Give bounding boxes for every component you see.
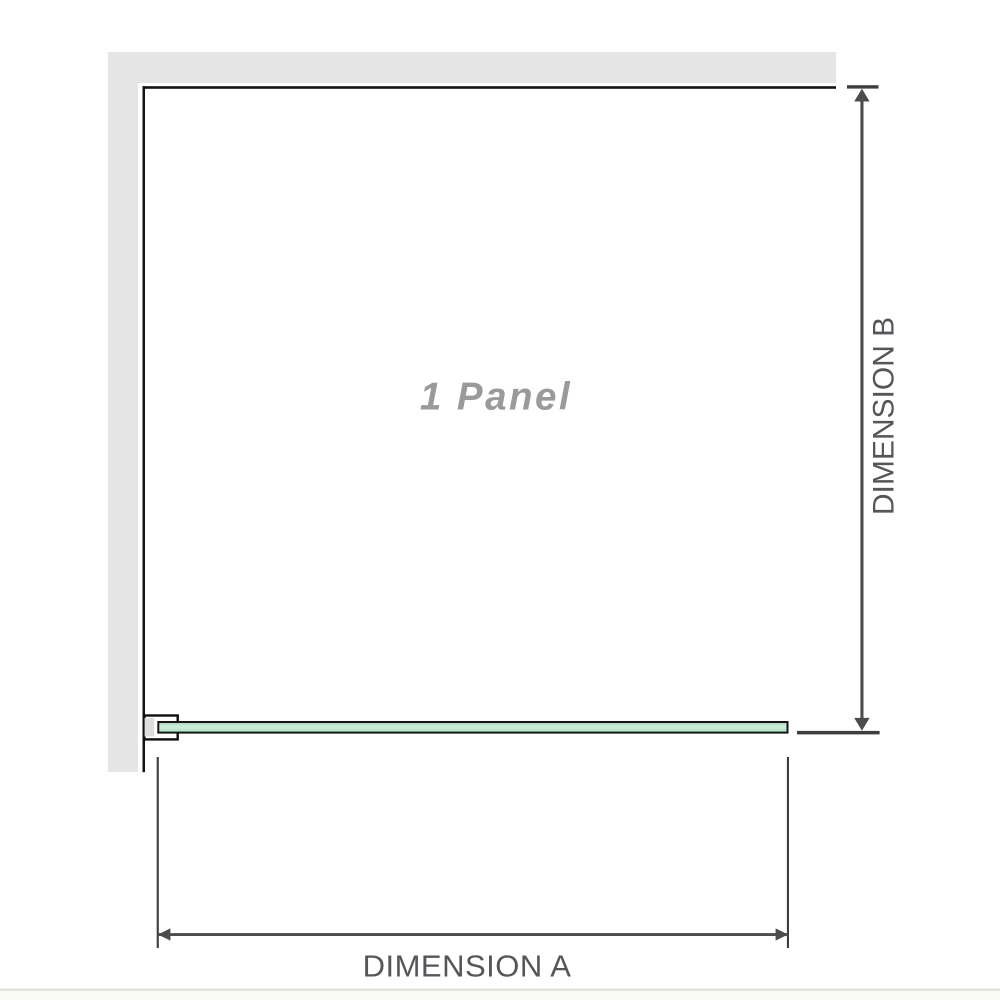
svg-text:1 Panel: 1 Panel — [420, 376, 572, 419]
svg-text:DIMENSION B: DIMENSION B — [868, 317, 901, 515]
svg-text:DIMENSION A: DIMENSION A — [363, 949, 572, 984]
